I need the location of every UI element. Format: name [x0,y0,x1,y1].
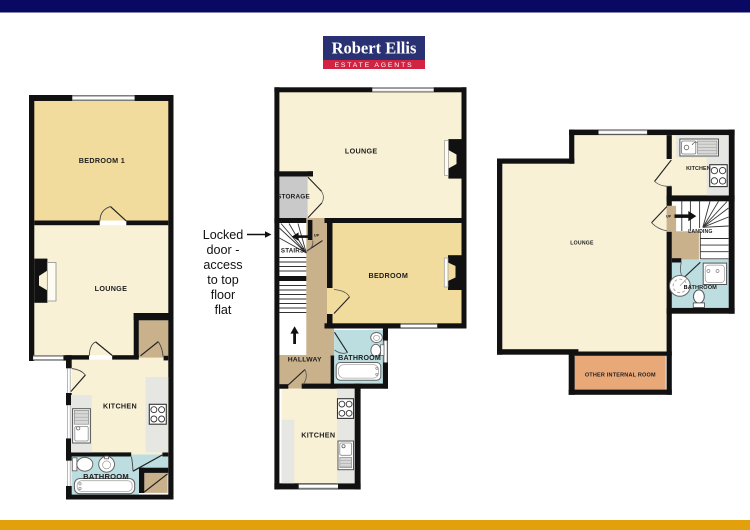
svg-text:KITCHEN: KITCHEN [103,402,137,411]
svg-text:BATHROOM: BATHROOM [684,285,718,291]
svg-text:access: access [203,258,242,272]
svg-text:LANDING: LANDING [688,229,712,235]
svg-text:LOUNGE: LOUNGE [345,146,378,155]
svg-text:Locked: Locked [203,228,244,242]
svg-text:UP: UP [666,214,672,218]
svg-text:floor: floor [211,288,236,302]
svg-text:STORAGE: STORAGE [277,193,310,200]
svg-text:BATHROOM: BATHROOM [83,472,129,481]
svg-text:flat: flat [215,303,232,317]
svg-text:door -: door - [207,243,240,257]
svg-text:BATHROOM: BATHROOM [338,354,381,362]
svg-text:UP: UP [314,232,320,237]
svg-text:LOUNGE: LOUNGE [95,284,128,293]
svg-text:KITCHEN: KITCHEN [686,166,711,172]
svg-text:BEDROOM: BEDROOM [368,271,408,280]
svg-text:OTHER INTERNAL ROOM: OTHER INTERNAL ROOM [585,372,656,378]
svg-text:Robert Ellis: Robert Ellis [332,39,417,58]
svg-text:KITCHEN: KITCHEN [301,430,335,439]
svg-text:to top: to top [207,273,239,287]
svg-text:HALLWAY: HALLWAY [288,357,322,364]
svg-text:LOUNGE: LOUNGE [570,240,594,246]
svg-text:ESTATE AGENTS: ESTATE AGENTS [335,62,414,69]
svg-text:BEDROOM 1: BEDROOM 1 [79,156,125,165]
svg-text:STAIRS: STAIRS [281,247,304,254]
